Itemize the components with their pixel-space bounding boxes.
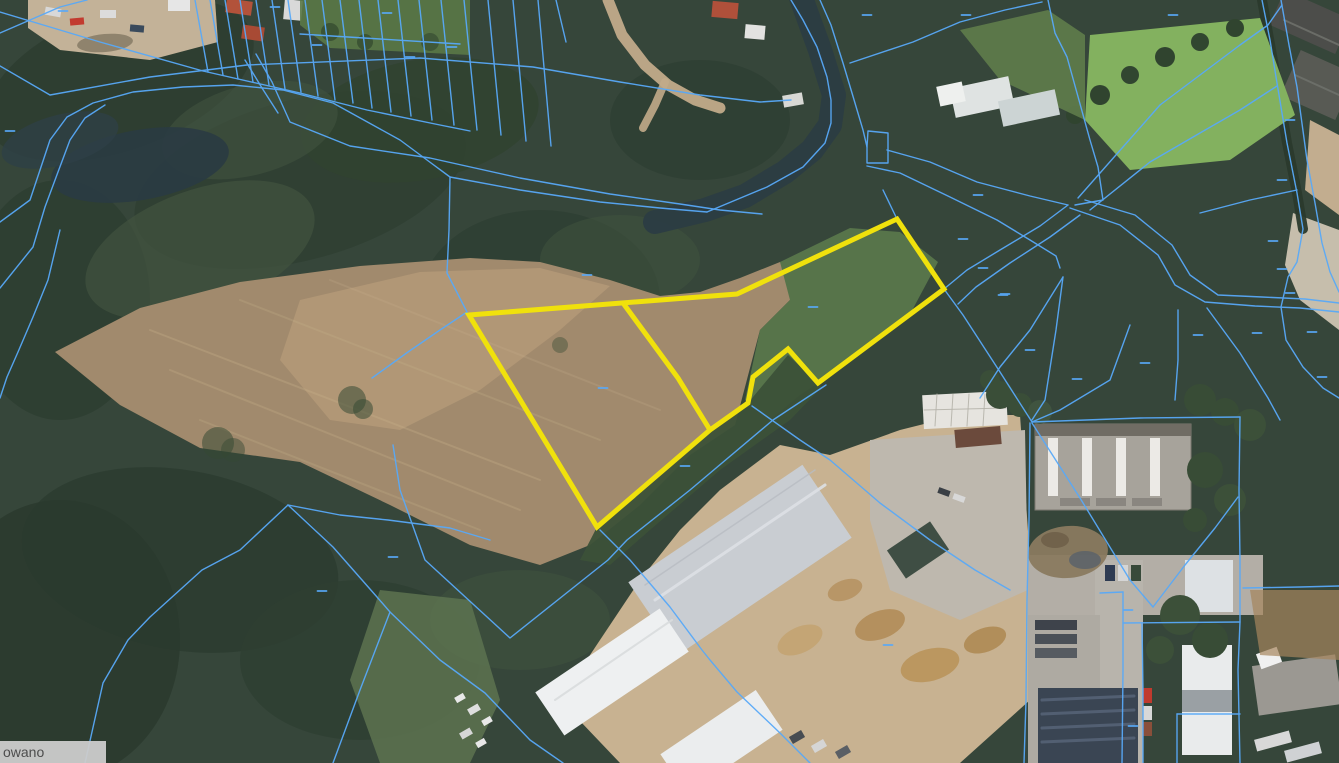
satellite-imagery-shape — [1146, 636, 1174, 664]
satellite-imagery-shape — [1250, 590, 1339, 660]
satellite-imagery-shape — [1035, 620, 1077, 630]
satellite-imagery-shape — [100, 10, 116, 18]
satellite-imagery-shape — [1182, 690, 1232, 712]
satellite-imagery-shape — [1105, 565, 1115, 581]
satellite-imagery-shape — [1096, 498, 1126, 506]
satellite-imagery-shape — [70, 17, 85, 25]
satellite-imagery-shape — [1143, 688, 1152, 703]
satellite-imagery-shape — [1035, 634, 1077, 644]
satellite-imagery-shape — [1183, 508, 1207, 532]
satellite-imagery-shape — [1041, 532, 1069, 548]
satellite-imagery-shape — [1143, 722, 1152, 736]
satellite-imagery-shape — [552, 337, 568, 353]
satellite-imagery-shape — [1069, 551, 1101, 569]
satellite-imagery-shape — [1082, 438, 1092, 496]
satellite-imagery-shape — [1035, 424, 1191, 510]
satellite-imagery-shape — [1132, 498, 1162, 506]
satellite-imagery-shape — [168, 0, 190, 11]
satellite-imagery-shape — [1160, 595, 1200, 635]
satellite-imagery-shape — [321, 23, 339, 41]
satellite-imagery-shape — [1035, 648, 1077, 658]
satellite-imagery-shape — [1143, 706, 1152, 720]
satellite-imagery-shape — [130, 24, 145, 32]
satellite-imagery-shape — [1131, 565, 1141, 581]
satellite-imagery-shape — [353, 399, 373, 419]
satellite-imagery-shape — [711, 1, 738, 19]
satellite-imagery-shape — [1214, 484, 1246, 516]
satellite-imagery-shape — [870, 430, 1028, 620]
satellite-imagery-shape — [283, 0, 303, 21]
map-viewport: owano — [0, 0, 1339, 763]
satellite-imagery-shape — [1150, 438, 1160, 496]
satellite-imagery-shape — [1187, 452, 1223, 488]
satellite-imagery-shape — [1192, 622, 1228, 658]
cadastral-boundary-line — [1100, 592, 1123, 593]
satellite-imagery-shape — [1116, 438, 1126, 496]
cadastral-boundary-line — [1123, 622, 1240, 623]
satellite-imagery-shape — [1048, 438, 1058, 496]
satellite-imagery-shape — [1121, 66, 1139, 84]
satellite-imagery-shape — [221, 438, 245, 462]
satellite-imagery-shape — [1155, 47, 1175, 67]
satellite-imagery-shape — [1191, 33, 1209, 51]
map-canvas[interactable] — [0, 0, 1339, 763]
satellite-imagery-shape — [980, 370, 1000, 390]
satellite-imagery-shape — [1060, 498, 1090, 506]
satellite-imagery-shape — [1090, 85, 1110, 105]
satellite-imagery-shape — [1035, 424, 1191, 436]
satellite-imagery-shape — [1226, 19, 1244, 37]
satellite-imagery-shape — [744, 24, 765, 40]
satellite-imagery-shape — [1234, 409, 1266, 441]
satellite-imagery-shape — [610, 60, 790, 180]
